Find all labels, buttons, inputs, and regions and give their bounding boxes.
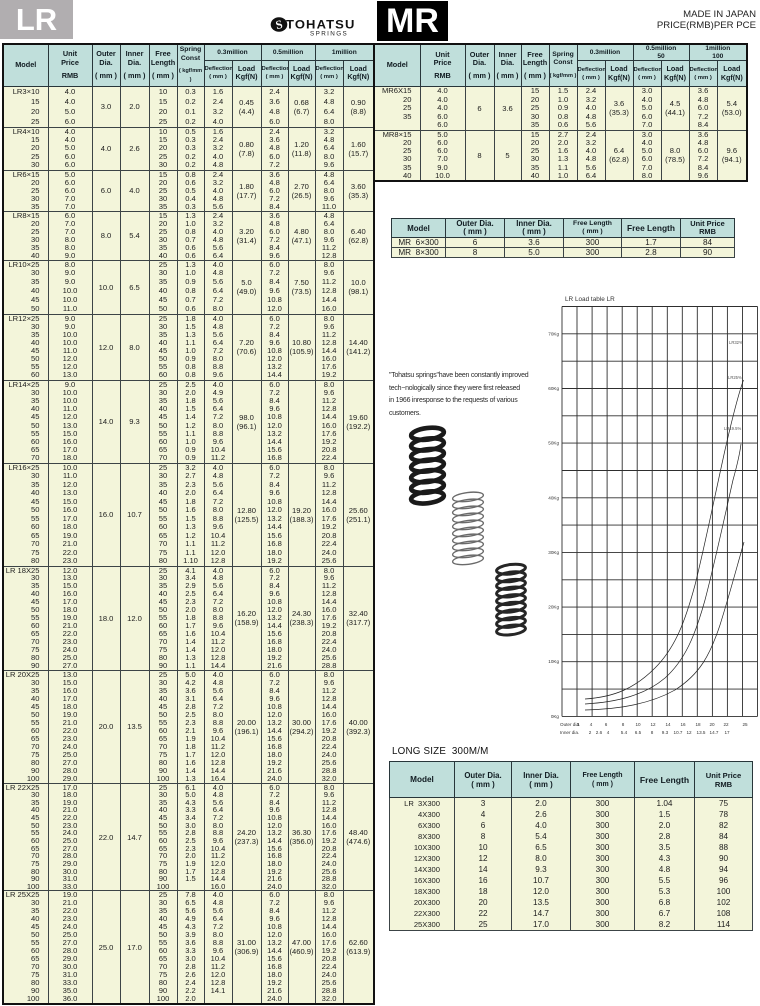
- svg-text:14: 14: [665, 722, 671, 727]
- svg-text:4: 4: [590, 722, 593, 727]
- svg-text:40Kg: 40Kg: [548, 495, 559, 500]
- svg-text:25: 25: [742, 722, 748, 727]
- svg-text:50Kg: 50Kg: [548, 441, 559, 446]
- svg-text:20: 20: [709, 722, 715, 727]
- svg-text:4: 4: [607, 730, 610, 735]
- svg-text:9.3: 9.3: [662, 730, 669, 735]
- svg-text:8: 8: [622, 722, 625, 727]
- svg-text:Inner dia.: Inner dia.: [560, 730, 579, 735]
- svg-text:16: 16: [680, 722, 686, 727]
- svg-text:12: 12: [686, 730, 692, 735]
- svg-text:0Kg: 0Kg: [551, 714, 560, 719]
- svg-text:6: 6: [605, 722, 608, 727]
- svg-text:2.6: 2.6: [596, 730, 603, 735]
- svg-text:3: 3: [577, 722, 580, 727]
- svg-text:10.7: 10.7: [674, 730, 683, 735]
- svg-text:LR32%: LR32%: [729, 340, 743, 345]
- svg-text:10: 10: [635, 722, 641, 727]
- svg-text:70Kg: 70Kg: [548, 331, 559, 336]
- svg-text:30Kg: 30Kg: [548, 550, 559, 555]
- svg-text:18: 18: [695, 722, 701, 727]
- svg-text:12: 12: [650, 722, 656, 727]
- svg-text:13.5: 13.5: [697, 730, 706, 735]
- svg-text:10Kg: 10Kg: [548, 659, 559, 664]
- svg-text:LR19.5%: LR19.5%: [724, 426, 742, 431]
- svg-text:22: 22: [723, 722, 729, 727]
- svg-text:LR Load table LR: LR Load table LR: [565, 296, 615, 303]
- svg-text:6.5: 6.5: [635, 730, 642, 735]
- svg-text:14.7: 14.7: [710, 730, 719, 735]
- svg-text:60Kg: 60Kg: [548, 386, 559, 391]
- svg-text:8: 8: [651, 730, 654, 735]
- svg-text:17: 17: [724, 730, 730, 735]
- svg-text:LR25%: LR25%: [728, 375, 742, 380]
- svg-text:20Kg: 20Kg: [548, 605, 559, 610]
- svg-text:5.4: 5.4: [621, 730, 628, 735]
- svg-text:2: 2: [589, 730, 592, 735]
